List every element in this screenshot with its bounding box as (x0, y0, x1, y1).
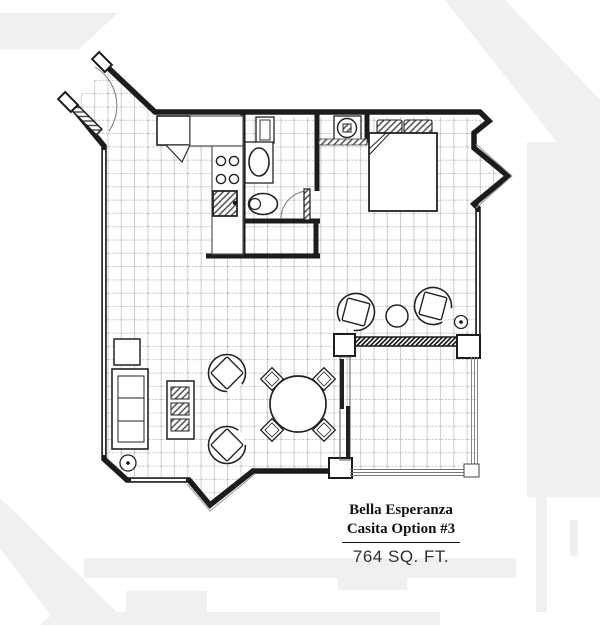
plant-center (459, 320, 463, 324)
patio-post (329, 458, 352, 478)
armchair (209, 427, 246, 464)
watermark-shape (338, 572, 407, 590)
pillow (404, 120, 432, 133)
burner (229, 174, 238, 183)
sink-faucet (233, 201, 237, 205)
title-rule (342, 542, 460, 543)
armchair (209, 355, 246, 392)
watermark-shape (527, 142, 600, 497)
kitchen-counter (190, 116, 243, 146)
side-table (386, 305, 408, 327)
bathroom-mirror-inner (260, 120, 270, 140)
bathroom-door-leaf (304, 189, 310, 220)
dining-table (270, 376, 326, 432)
floor-plan-drawing (0, 0, 600, 625)
plan-title-line1: Bella Esperanza (320, 501, 482, 520)
watermark-shape (0, 13, 118, 49)
vanity-basin (249, 148, 269, 176)
sofa-cushions (118, 376, 144, 442)
plan-title-line2: Casita Option #3 (320, 520, 482, 539)
watermark-shape (570, 520, 578, 556)
watermark-shape (536, 497, 547, 612)
refrigerator (157, 116, 190, 145)
burner (216, 156, 225, 165)
shelf-drawer (171, 403, 189, 415)
toilet-seat (250, 199, 261, 210)
door-jamb (58, 92, 78, 112)
slider-panel (340, 359, 344, 409)
closet-sill (319, 139, 367, 145)
shelf-drawer (171, 387, 189, 399)
plant-center (126, 461, 130, 465)
dining-area (261, 368, 336, 442)
screen-corner-post (464, 464, 479, 477)
patio-wall (352, 337, 460, 346)
plan-area-label: 764 SQ. FT. (320, 547, 482, 567)
title-block: Bella Esperanza Casita Option #3 764 SQ.… (320, 501, 482, 567)
patio-post (457, 335, 480, 358)
pillow (377, 120, 402, 133)
screen-wall-bottom (350, 470, 479, 476)
floor-plan-page: Bella Esperanza Casita Option #3 764 SQ.… (0, 0, 600, 625)
shelf-drawer (171, 419, 189, 431)
slider-panel (346, 406, 350, 458)
burner (216, 174, 225, 183)
end-table (114, 339, 140, 365)
watermark-shape (126, 591, 207, 625)
patio-post (334, 334, 355, 356)
burner (229, 156, 238, 165)
door-jamb (92, 52, 112, 72)
water-heater-core (343, 124, 351, 132)
